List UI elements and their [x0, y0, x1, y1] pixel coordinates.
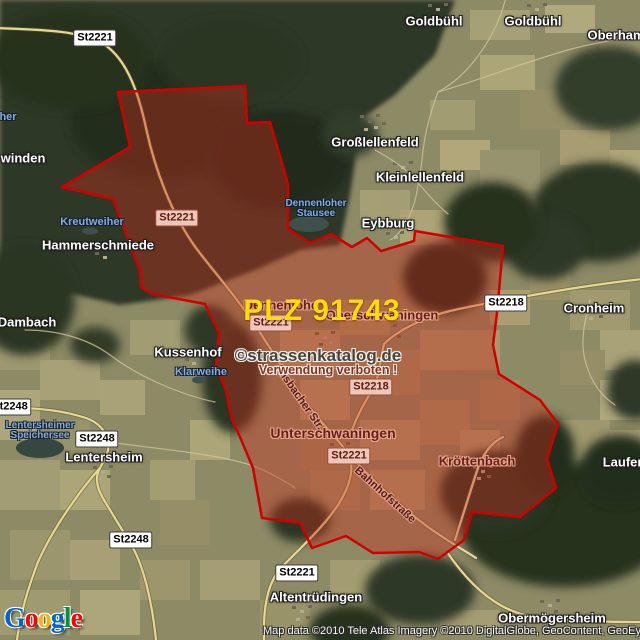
water-label-klarweihe: Klarweihe	[175, 366, 227, 378]
town-label-kleinlellenfeld: Kleinlellenfeld	[376, 170, 464, 185]
town-label-eybburg: Eybburg	[362, 216, 415, 231]
road-shield-st2248-edge: St2248	[0, 399, 32, 416]
google-logo[interactable]: Google	[4, 603, 82, 635]
road-shield-st2248-south: St2248	[109, 532, 152, 549]
road-shield-st2221-forest: St2221	[155, 210, 198, 227]
water-label-speichersee: Lentersheimer Speichersee	[6, 421, 75, 441]
town-label-cronheim: Cronheim	[564, 301, 625, 316]
google-logo-letter: l	[64, 603, 71, 634]
satellite-map-canvas[interactable]: Goldbühl Goldbühl Oberhamb winden Großle…	[0, 0, 640, 640]
watermark-notice: Verwendung verboten !	[259, 363, 397, 377]
water-label-fragment-her: her	[0, 111, 17, 123]
kreutweiher-water	[82, 228, 98, 235]
town-label-grosslellenfeld: Großlellenfeld	[331, 135, 418, 150]
google-logo-letter: o	[38, 603, 51, 634]
town-label-altentruedingen: Altentrüdingen	[270, 590, 362, 605]
speichersee-water	[16, 438, 64, 458]
town-label-goldbuehl-1: Goldbühl	[405, 14, 462, 29]
road-shield-st2221-south: St2221	[275, 565, 318, 582]
town-label-hammerschmiede: Hammerschmiede	[42, 238, 154, 253]
water-label-line2: Stausee	[285, 209, 346, 219]
road-shield-st2248-mid: St2248	[75, 431, 118, 448]
town-label-lentersheim: Lentersheim	[65, 450, 142, 465]
google-logo-letter: g	[51, 603, 64, 634]
town-label-dambach: Dambach	[0, 315, 56, 330]
road-shield-st2221-unterschwaningen: St2221	[327, 448, 370, 465]
town-label-kroettenbach: Kröttenbach	[439, 454, 516, 469]
road-shield-st2221-north: St2221	[73, 30, 116, 47]
town-label-winden-cut: winden	[1, 151, 46, 166]
water-label-line2: Speichersee	[6, 431, 75, 441]
road-shield-st2218-west: St2218	[349, 379, 392, 396]
town-label-oberhambach-cut: Oberhamb	[587, 28, 640, 43]
google-logo-letter: o	[25, 603, 38, 634]
town-label-kussenhof: Kussenhof	[154, 345, 221, 360]
google-logo-letter: G	[4, 603, 25, 634]
map-attribution: Map data ©2010 Tele Atlas Imagery ©2010 …	[263, 625, 640, 637]
water-label-kreutweiher: Kreutweiher	[60, 216, 124, 228]
plz-title: PLZ 91743	[243, 294, 400, 328]
google-logo-letter: e	[71, 603, 82, 634]
town-label-laufenb-cut: Laufenb	[603, 455, 640, 470]
town-label-obermoegersheim: Obermögersheim	[498, 611, 606, 626]
town-label-goldbuehl-2: Goldbühl	[504, 14, 561, 29]
water-label-dennenloher-stausee: Dennenloher Stausee	[285, 199, 346, 219]
road-shield-st2218-east: St2218	[484, 295, 527, 312]
town-label-unterschwaningen: Unterschwaningen	[270, 425, 395, 441]
